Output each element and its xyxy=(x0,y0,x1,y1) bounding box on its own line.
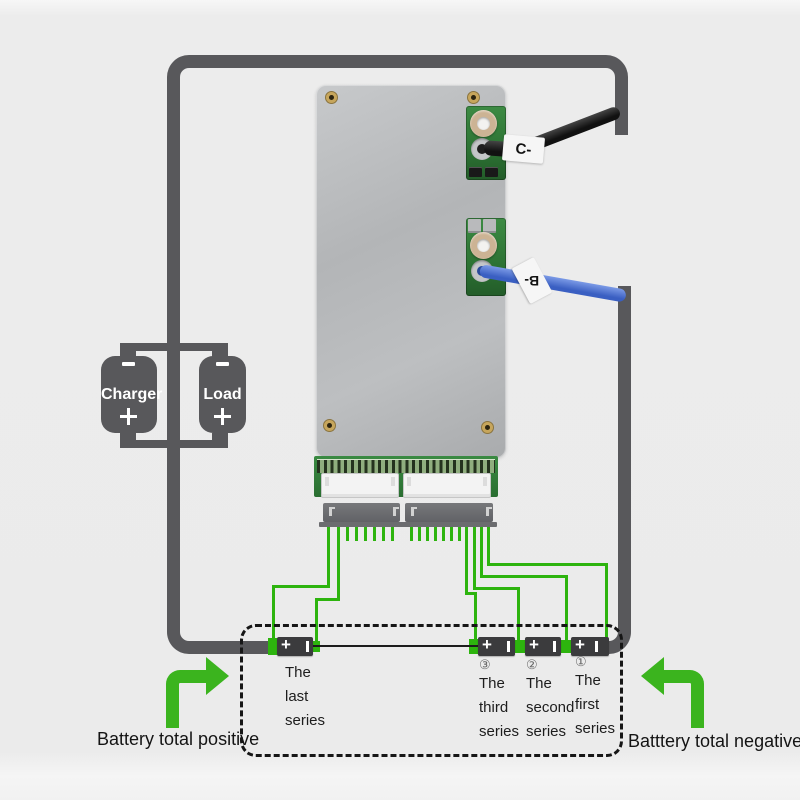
negative-arrow-head xyxy=(641,657,664,695)
cell-negative-mark xyxy=(306,641,309,652)
battery-cell-second: + xyxy=(525,637,561,656)
c-wire-tag: C- xyxy=(502,134,545,163)
bms-wiring-diagram: Charger Load C- B- xyxy=(0,0,800,800)
wire-corner-top-left xyxy=(167,55,207,95)
pin-header-row xyxy=(317,459,495,473)
series-link-line xyxy=(313,645,478,647)
c-terminal-hole xyxy=(470,110,497,137)
sense-wire-stub xyxy=(346,527,349,541)
positive-arrow-head xyxy=(206,657,229,695)
sense-wire-stub xyxy=(355,527,358,541)
sense-wire-last-left-h xyxy=(272,585,330,588)
battery-cell-last: + xyxy=(277,637,313,656)
load-plus-icon xyxy=(214,408,231,425)
sense-wire-stub xyxy=(382,527,385,541)
sense-wire-third-second-h xyxy=(473,587,520,590)
sense-wire-last-left-v1 xyxy=(327,527,330,588)
load-icon: Load xyxy=(199,356,246,433)
label-second-series: ② The second series xyxy=(526,658,574,744)
label-last-series: The last series xyxy=(285,661,325,733)
screw-bottom-left xyxy=(323,419,336,432)
sense-wire-second-first-v1 xyxy=(480,527,483,578)
cell-plus-mark: + xyxy=(281,635,291,655)
negative-arrow-corner xyxy=(677,670,704,697)
junction-second-first xyxy=(561,640,571,653)
wire-left-vertical xyxy=(167,90,180,614)
sense-wire-first-right-h xyxy=(487,563,608,566)
load-label: Load xyxy=(199,386,246,404)
sense-wire-stub xyxy=(373,527,376,541)
wire-top-horizontal xyxy=(203,55,593,68)
balance-plug-left xyxy=(323,503,400,522)
cell-plus-mark: + xyxy=(529,635,539,655)
load-minus-icon xyxy=(216,362,229,366)
sense-wire-second-first-h xyxy=(480,575,568,578)
sense-wire-first-right-v1 xyxy=(487,527,490,566)
balance-connector-socket-right xyxy=(403,473,491,498)
b-wire-tag: B- xyxy=(512,257,553,304)
ordinal-mark: ② xyxy=(526,658,574,672)
smd-chip xyxy=(485,167,498,177)
charger-minus-icon xyxy=(122,362,135,366)
sense-wire-stub xyxy=(410,527,413,541)
label-third-series: ③ The third series xyxy=(479,658,519,744)
bottom-bus-left-pad xyxy=(120,433,136,448)
charger-icon: Charger xyxy=(101,356,157,433)
sense-wire-stub xyxy=(418,527,421,541)
cell-plus-mark: + xyxy=(575,635,585,655)
screw-top-left xyxy=(325,91,338,104)
negative-arrow-arm xyxy=(663,670,679,683)
cell-negative-mark xyxy=(595,641,598,652)
negative-caption: Batttery total negative xyxy=(628,731,800,752)
sense-wire-stub xyxy=(426,527,429,541)
ordinal-mark: ① xyxy=(575,655,615,669)
screw-top-right xyxy=(467,91,480,104)
wire-corner-top-right xyxy=(588,55,628,95)
capacitor xyxy=(483,219,496,233)
sense-wire-last-right-v1 xyxy=(337,527,340,601)
junction-third-second xyxy=(515,640,525,653)
positive-arrow-arm xyxy=(191,670,207,683)
sense-wire-stub xyxy=(442,527,445,541)
sense-wire-stub xyxy=(434,527,437,541)
sense-wire-third-left-v1 xyxy=(465,527,468,595)
balance-connector-socket-left xyxy=(321,473,399,498)
bottom-bus-right-pad xyxy=(212,433,228,448)
cell-plus-mark: + xyxy=(482,635,492,655)
sense-wire-stub xyxy=(450,527,453,541)
smd-chip xyxy=(469,167,482,177)
balance-plug-right xyxy=(405,503,493,522)
sense-wire-stub xyxy=(364,527,367,541)
b-wire-tag-text: B- xyxy=(525,273,540,289)
capacitor xyxy=(468,219,481,233)
charger-label: Charger xyxy=(101,386,157,404)
cell-negative-mark xyxy=(553,641,556,652)
ordinal-mark: ③ xyxy=(479,658,519,672)
label-first-series: ① The first series xyxy=(575,655,615,741)
sense-wire-stub xyxy=(458,527,461,541)
cell-negative-mark xyxy=(507,641,510,652)
sense-wire-stub xyxy=(391,527,394,541)
battery-cell-third: + xyxy=(478,637,515,656)
positive-arrow-corner xyxy=(166,670,193,697)
c-wire-tag-text: C- xyxy=(515,140,532,158)
screw-bottom-right xyxy=(481,421,494,434)
charger-plus-icon xyxy=(120,408,137,425)
sense-wire-last-right-h xyxy=(315,598,340,601)
wire-corner-bottom-left xyxy=(167,612,210,654)
sense-wire-third-second-v1 xyxy=(473,527,476,589)
b-terminal-hole xyxy=(470,232,497,259)
positive-caption: Battery total positive xyxy=(97,729,259,750)
wire-right-vertical xyxy=(618,286,631,612)
